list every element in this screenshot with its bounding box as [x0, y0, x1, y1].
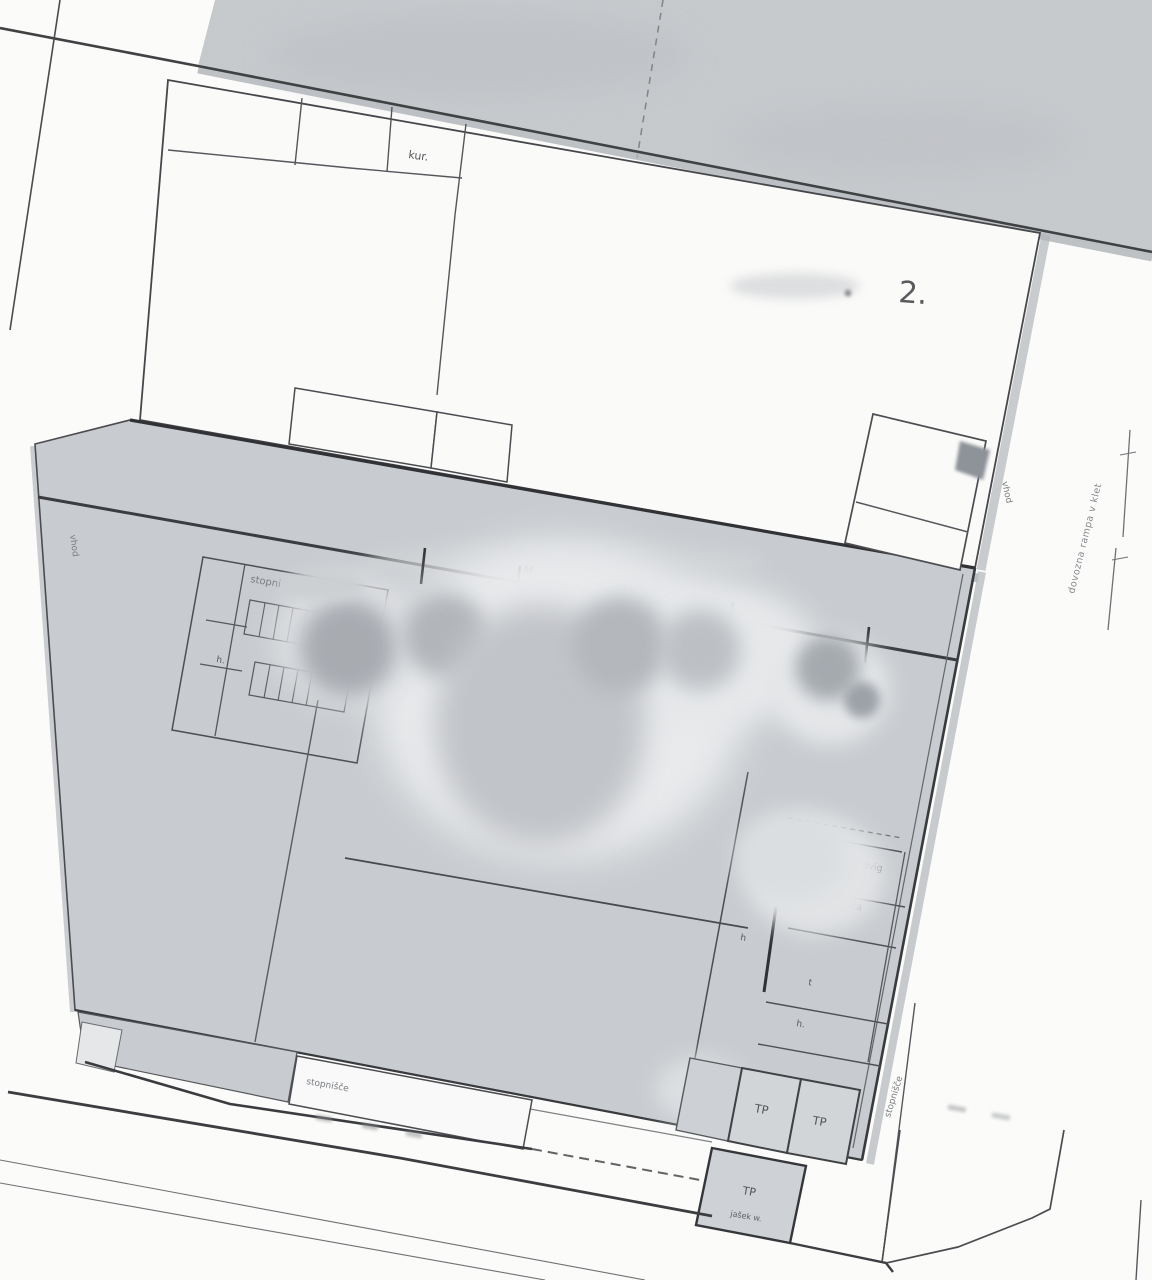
- scanned-floor-plan-page: kur. 2. M: [0, 0, 1152, 1280]
- site-plan-drawing: kur. 2. M: [0, 0, 1152, 1280]
- scan-grain-overlay: [0, 0, 1152, 1280]
